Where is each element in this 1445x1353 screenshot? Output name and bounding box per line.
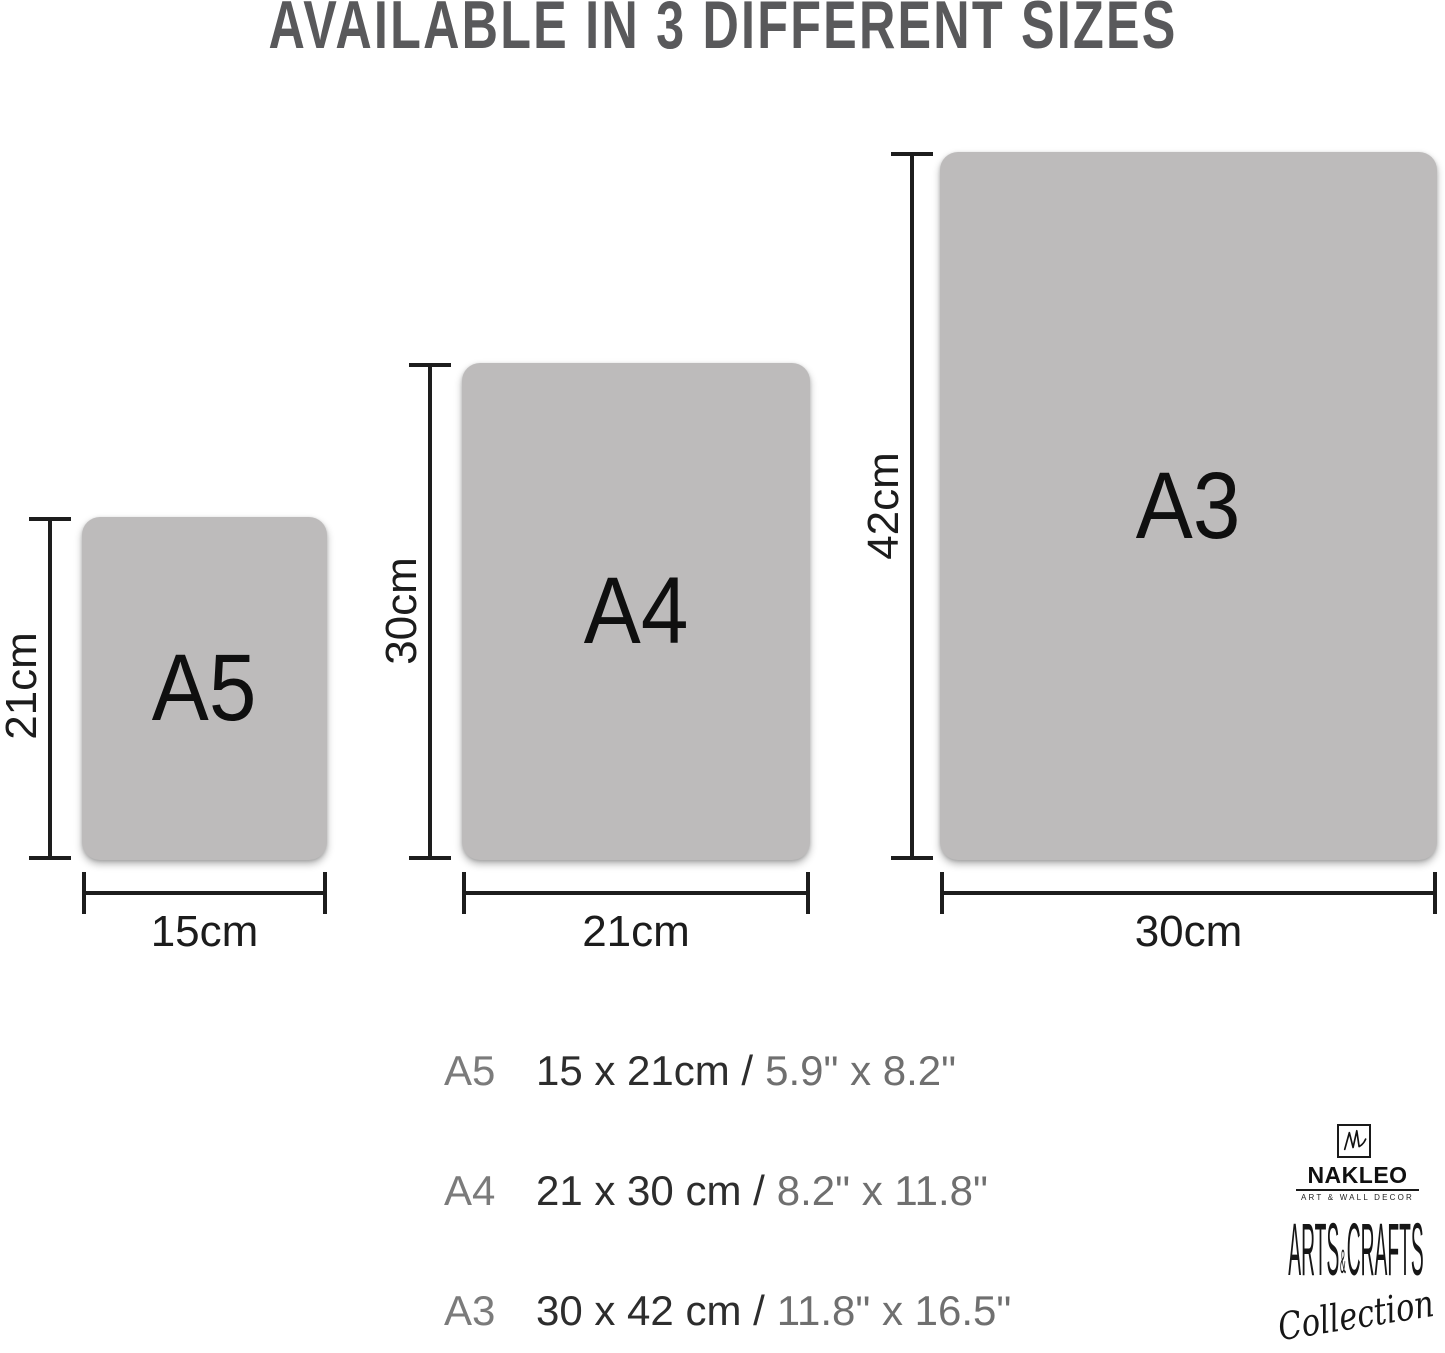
size-list-cm-value: 30 x 42 cm / xyxy=(536,1287,765,1334)
brand-tagline: ART & WALL DECOR xyxy=(1292,1193,1423,1202)
a3-width-label: 30cm xyxy=(940,908,1437,956)
a3-paper-swatch: A3 xyxy=(940,152,1437,860)
size-guide-diagram: AVAILABLE IN 3 DIFFERENT SIZES 21cm A5 1… xyxy=(0,0,1445,1353)
a3-height-label: 42cm xyxy=(862,452,906,560)
a5-paper-swatch: A5 xyxy=(82,517,327,860)
page-title: AVAILABLE IN 3 DIFFERENT SIZES xyxy=(268,0,1177,59)
a5-height-dimension-line xyxy=(48,517,52,860)
a4-width-label: 21cm xyxy=(462,908,810,956)
a3-size-label: A3 xyxy=(1136,452,1241,561)
size-list-cm-value: 21 x 30 cm / xyxy=(536,1167,765,1214)
size-list-inch-value: 5.9" x 8.2" xyxy=(765,1047,956,1094)
a5-width-dimension-line xyxy=(82,891,327,895)
size-list-row-a4: A421 x 30 cm /8.2" x 11.8" xyxy=(444,1168,988,1214)
arts-and-crafts-wordmark: ARTS&CRAFTS xyxy=(1288,1213,1423,1287)
size-list-name: A5 xyxy=(444,1048,536,1094)
size-list-row-a5: A515 x 21cm /5.9" x 8.2" xyxy=(444,1048,956,1094)
arts-text: ARTS xyxy=(1288,1213,1339,1287)
nl-signature-icon xyxy=(1340,1128,1368,1154)
a3-width-dimension-line xyxy=(940,891,1437,895)
crafts-text: CRAFTS xyxy=(1347,1213,1424,1287)
brand-name: NAKLEO xyxy=(1296,1163,1419,1187)
a5-width-label: 15cm xyxy=(82,908,327,956)
ampersand-text: & xyxy=(1340,1225,1346,1299)
a4-height-label: 30cm xyxy=(380,557,424,665)
size-list-name: A3 xyxy=(444,1288,536,1334)
a3-height-dimension-line xyxy=(910,152,914,860)
a4-size-label: A4 xyxy=(584,557,689,666)
size-list-row-a3: A330 x 42 cm /11.8" x 16.5" xyxy=(444,1288,1011,1334)
a4-paper-swatch: A4 xyxy=(462,363,810,860)
size-list-name: A4 xyxy=(444,1168,536,1214)
collection-script-text: Collection xyxy=(1275,1282,1437,1349)
size-list-inch-value: 11.8" x 16.5" xyxy=(777,1287,1012,1334)
a4-width-dimension-line xyxy=(462,891,810,895)
a4-height-dimension-line xyxy=(428,363,432,860)
a5-height-label: 21cm xyxy=(0,632,44,740)
size-list-inch-value: 8.2" x 11.8" xyxy=(777,1167,988,1214)
brand-divider xyxy=(1296,1189,1419,1191)
size-list-cm-value: 15 x 21cm / xyxy=(536,1047,753,1094)
nakleo-monogram-box xyxy=(1337,1124,1371,1158)
a5-size-label: A5 xyxy=(152,634,257,743)
